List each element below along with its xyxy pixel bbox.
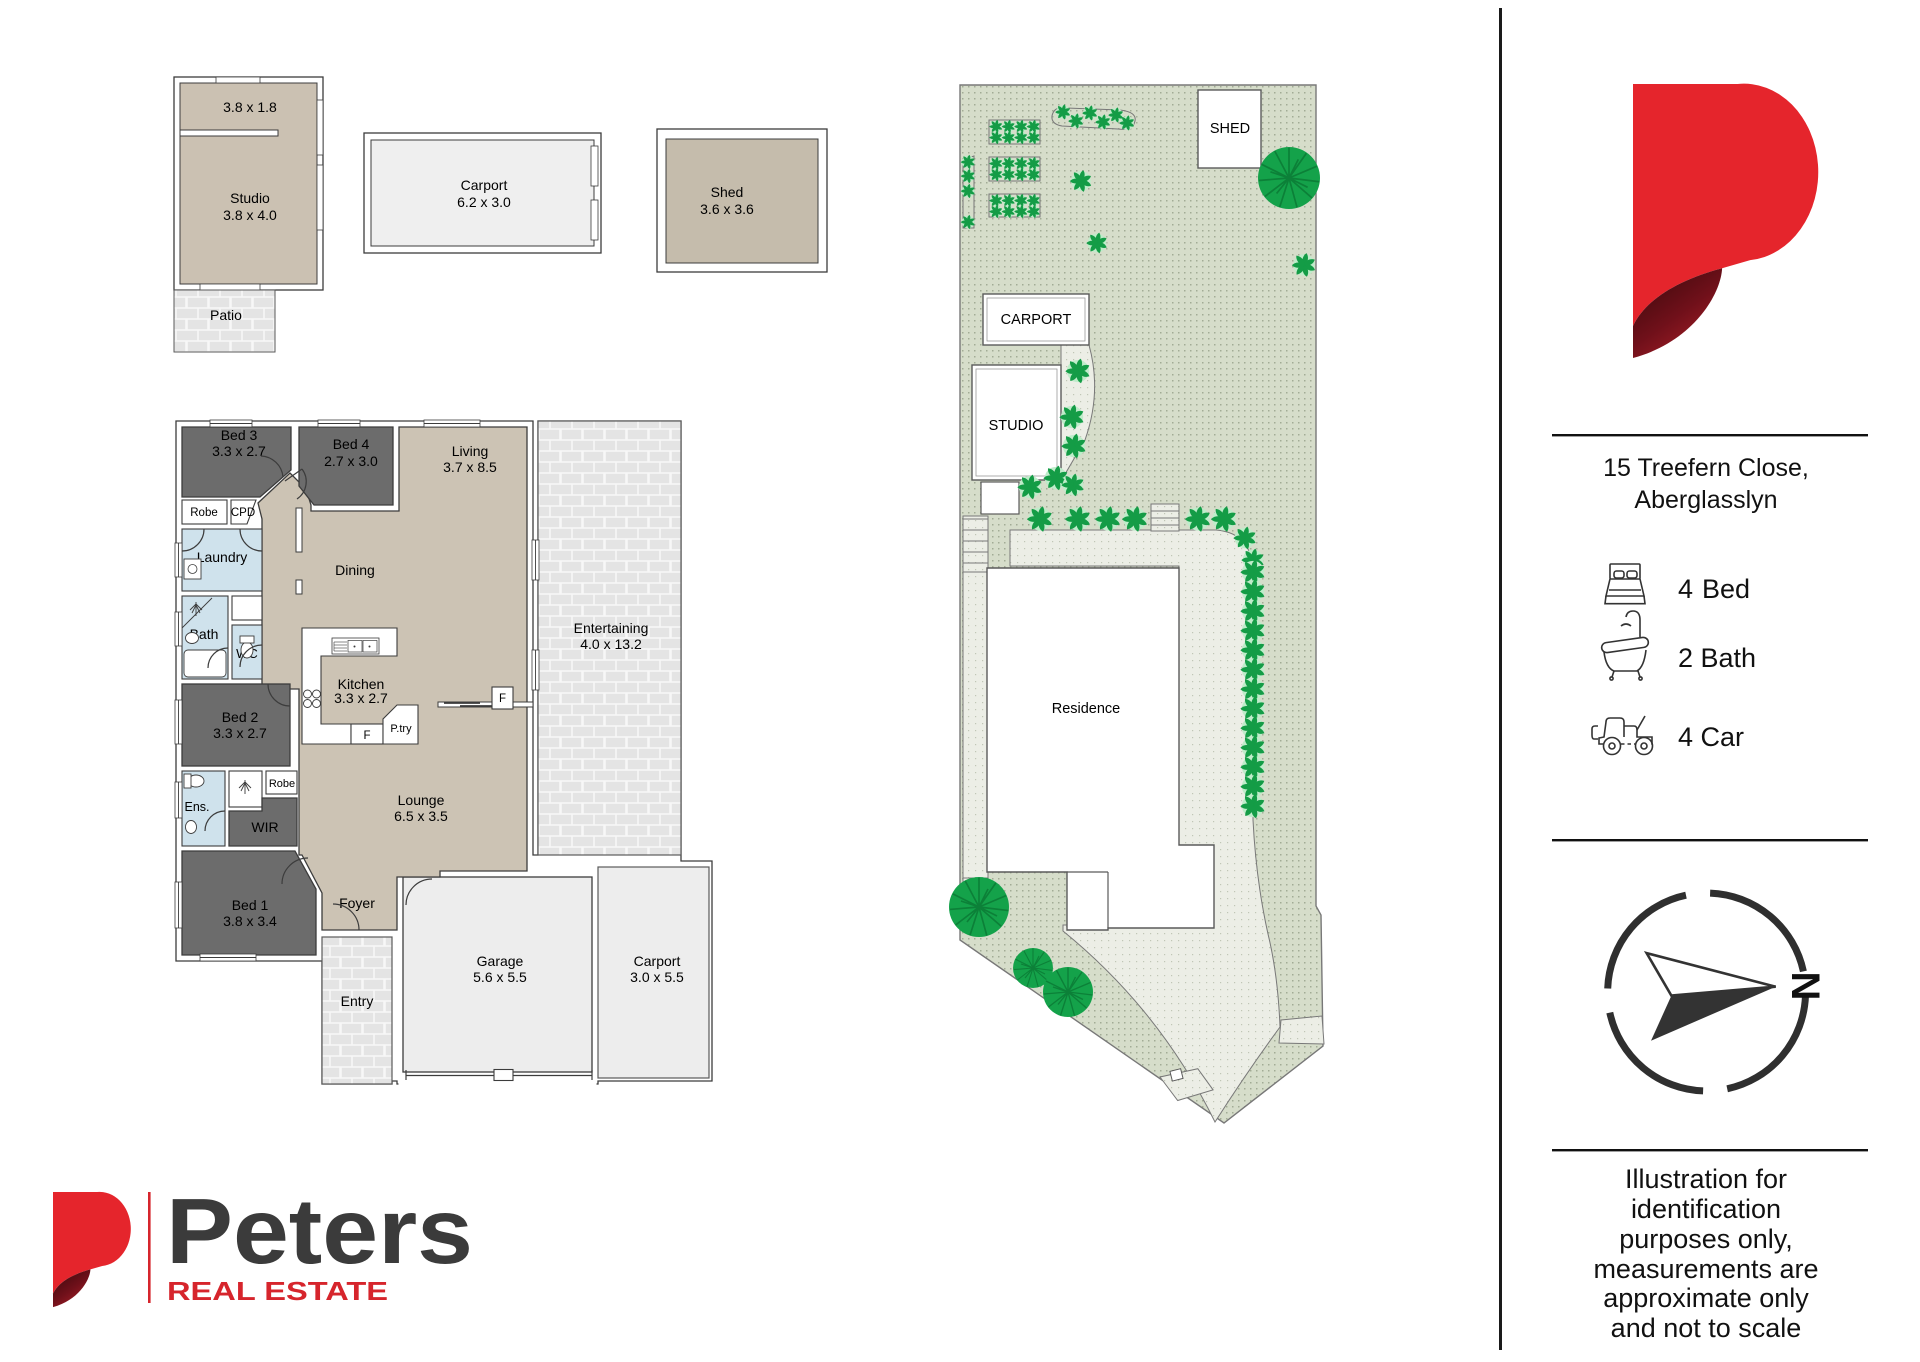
svg-text:Ens.: Ens. — [184, 800, 209, 814]
svg-text:3.8 x 4.0: 3.8 x 4.0 — [223, 207, 277, 223]
svg-text:Patio: Patio — [210, 307, 242, 323]
svg-text:approximate only: approximate only — [1603, 1283, 1809, 1313]
svg-text:Illustration for: Illustration for — [1625, 1164, 1787, 1194]
svg-text:Bed 1: Bed 1 — [232, 897, 269, 913]
svg-text:CPD: CPD — [231, 507, 255, 519]
svg-text:and not to scale: and not to scale — [1611, 1313, 1802, 1343]
svg-text:Dining: Dining — [335, 562, 375, 578]
svg-text:Residence: Residence — [1052, 701, 1121, 717]
svg-text:3.3 x 2.7: 3.3 x 2.7 — [212, 443, 266, 459]
svg-text:Living: Living — [452, 443, 489, 459]
svg-text:5.6 x 5.5: 5.6 x 5.5 — [473, 969, 527, 985]
svg-text:4.0 x 13.2: 4.0 x 13.2 — [580, 636, 642, 652]
svg-text:Garage: Garage — [477, 953, 524, 969]
svg-text:F: F — [363, 730, 370, 742]
svg-text:Entry: Entry — [341, 993, 374, 1009]
svg-text:2.7 x 3.0: 2.7 x 3.0 — [324, 453, 378, 469]
svg-text:3.3 x 2.7: 3.3 x 2.7 — [213, 725, 267, 741]
svg-text:3.7 x 8.5: 3.7 x 8.5 — [443, 459, 497, 475]
svg-text:3.8 x 3.4: 3.8 x 3.4 — [223, 913, 277, 929]
svg-text:REAL ESTATE: REAL ESTATE — [167, 1276, 388, 1306]
svg-text:4Bed: 4Bed — [1678, 574, 1750, 604]
svg-text:STUDIO: STUDIO — [989, 418, 1044, 434]
svg-text:6.5 x 3.5: 6.5 x 3.5 — [394, 808, 448, 824]
svg-text:Peters: Peters — [166, 1179, 473, 1283]
svg-text:measurements are: measurements are — [1593, 1254, 1818, 1284]
svg-text:Lounge: Lounge — [398, 792, 445, 808]
svg-text:3.0 x 5.5: 3.0 x 5.5 — [630, 969, 684, 985]
svg-text:3.6 x 3.6: 3.6 x 3.6 — [700, 201, 754, 217]
svg-text:P.try: P.try — [390, 723, 412, 735]
svg-text:2 Bath: 2 Bath — [1678, 643, 1756, 673]
svg-text:Laundry: Laundry — [197, 549, 248, 565]
svg-text:WIR: WIR — [251, 819, 278, 835]
svg-text:Bed 2: Bed 2 — [222, 709, 259, 725]
svg-text:3.3 x 2.7: 3.3 x 2.7 — [334, 690, 388, 706]
svg-text:Bed 3: Bed 3 — [221, 427, 258, 443]
svg-text:15 Treefern Close,: 15 Treefern Close, — [1603, 454, 1809, 482]
svg-text:N: N — [1783, 972, 1827, 1001]
svg-text:Robe: Robe — [269, 778, 295, 790]
svg-text:CARPORT: CARPORT — [1001, 312, 1072, 328]
svg-text:Shed: Shed — [711, 184, 744, 200]
svg-text:SHED: SHED — [1210, 121, 1250, 137]
svg-text:4 Car: 4 Car — [1678, 722, 1744, 752]
svg-text:6.2 x 3.0: 6.2 x 3.0 — [457, 194, 511, 210]
svg-text:identification: identification — [1631, 1194, 1781, 1224]
svg-text:Aberglasslyn: Aberglasslyn — [1634, 486, 1777, 514]
svg-text:Entertaining: Entertaining — [574, 620, 649, 636]
svg-text:F: F — [499, 693, 506, 705]
svg-text:purposes only,: purposes only, — [1619, 1224, 1793, 1254]
svg-text:Carport: Carport — [634, 953, 681, 969]
svg-text:Foyer: Foyer — [339, 895, 375, 911]
svg-text:Carport: Carport — [461, 177, 508, 193]
svg-text:Robe: Robe — [190, 507, 218, 519]
svg-text:3.8 x 1.8: 3.8 x 1.8 — [223, 99, 277, 115]
svg-text:Studio: Studio — [230, 190, 270, 206]
svg-text:Bed 4: Bed 4 — [333, 436, 370, 452]
